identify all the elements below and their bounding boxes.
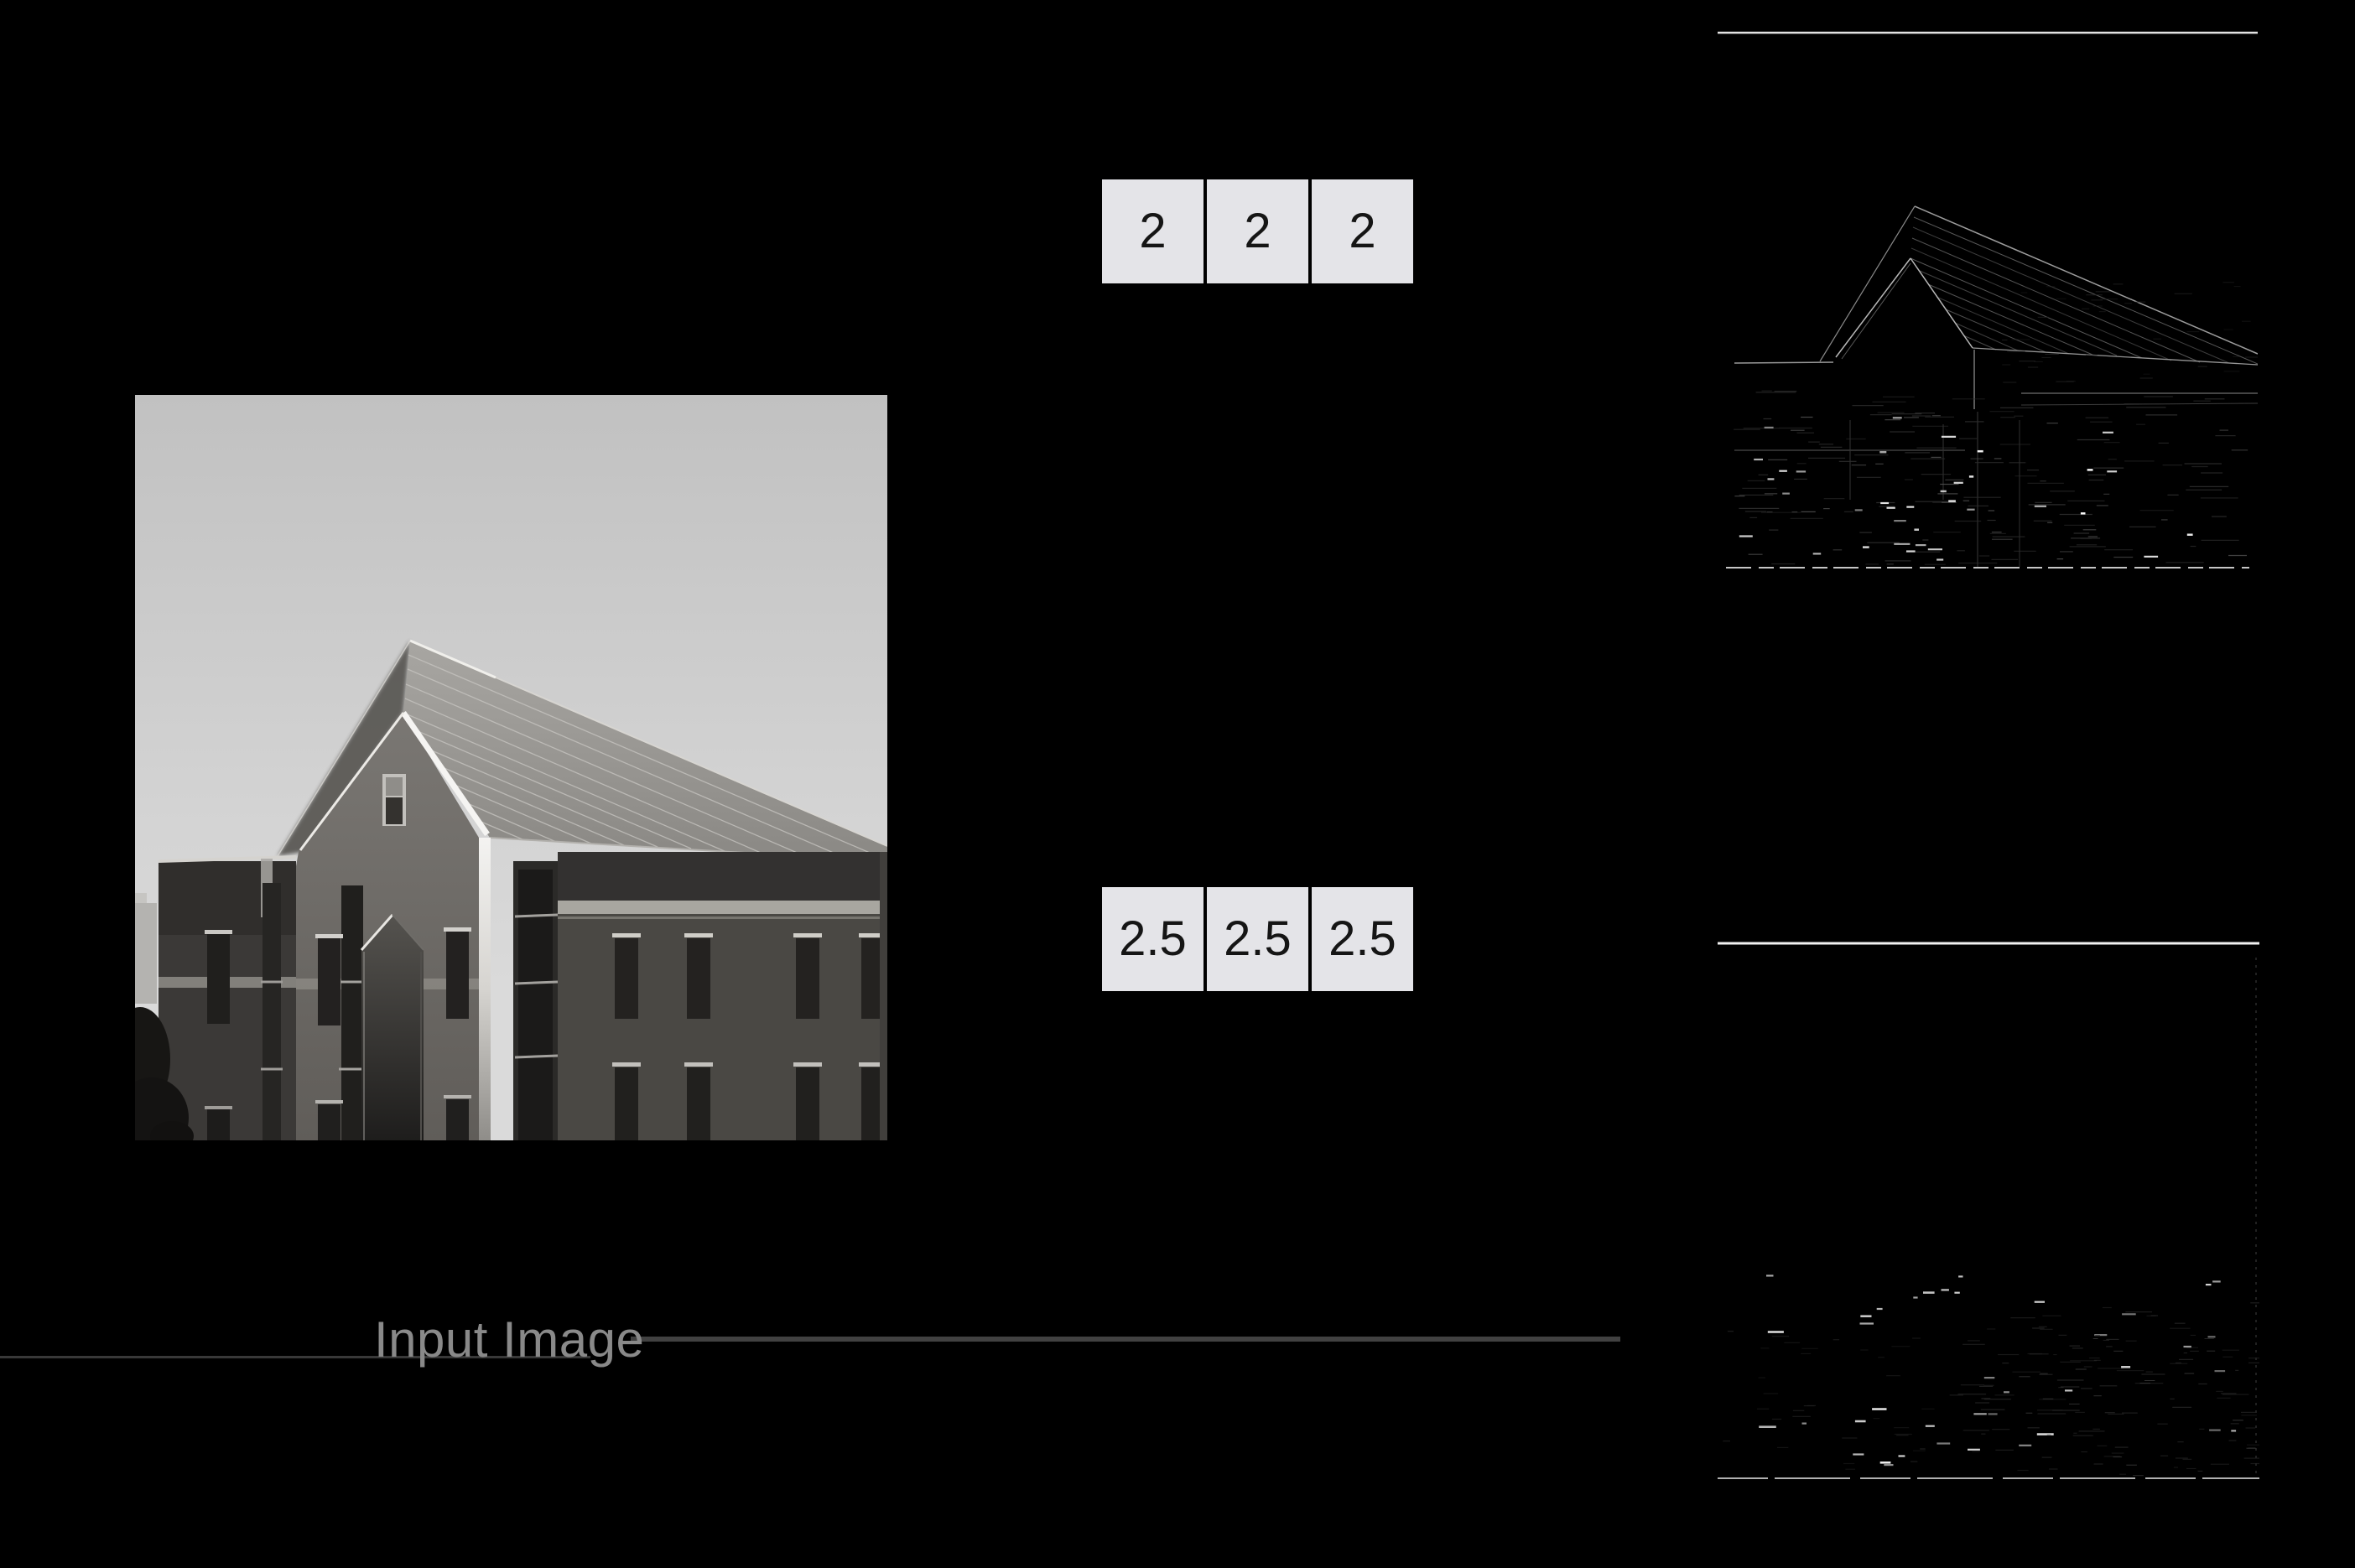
kernel-cell: 2 — [1102, 179, 1203, 283]
kernel-cell: 2 — [1312, 179, 1413, 283]
entry-arch — [361, 915, 424, 1140]
kernel-cell: 2.5 — [1207, 887, 1308, 991]
input-image — [135, 395, 887, 1140]
output-image-top — [1718, 30, 2258, 570]
figure-canvas: 2 2 2 2.5 2.5 2.5 Input Image — [0, 0, 2355, 1568]
right-recessed-bay — [513, 861, 558, 1140]
label-to-output-line — [631, 1337, 1620, 1342]
kernel-row-top: 2 2 2 — [1102, 179, 1413, 283]
recessed-glazing — [341, 885, 363, 1140]
right-block — [558, 852, 887, 1140]
kernel-cell: 2.5 — [1312, 887, 1413, 991]
kernel-cell: 2.5 — [1102, 887, 1203, 991]
output-image-bottom — [1718, 941, 2259, 1481]
corner-highlight — [479, 838, 491, 1140]
kernel-row-bottom: 2.5 2.5 2.5 — [1102, 887, 1413, 991]
attic-window — [382, 774, 406, 826]
kernel-cell: 2 — [1207, 179, 1308, 283]
background-building — [135, 893, 157, 1004]
input-image-label: Input Image — [374, 1315, 644, 1365]
